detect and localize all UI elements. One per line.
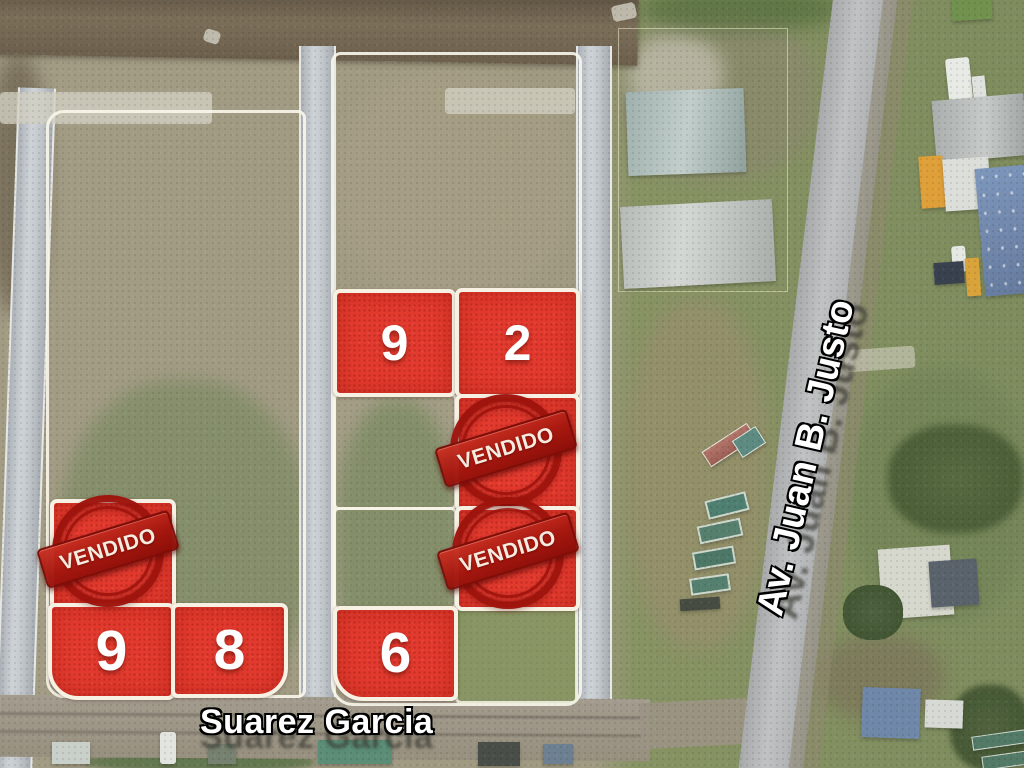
lot-number: 8 <box>214 622 246 679</box>
avenue-driveway <box>844 346 915 373</box>
house-blue-roof-bottom <box>861 687 921 739</box>
vendido-stamp-2: VENDIDO <box>452 497 564 609</box>
tree-blob-mid-right <box>843 585 903 640</box>
bottom-house-1 <box>52 742 90 764</box>
white-truck-1 <box>945 57 973 101</box>
lot-9-bottom: 9 <box>48 603 175 700</box>
lot-2: 2 <box>455 288 580 398</box>
lot-number: 9 <box>96 623 128 680</box>
lot-6: 6 <box>333 606 458 701</box>
warehouse-roof-1 <box>626 88 747 176</box>
vendido-stamp-3: VENDIDO <box>52 495 164 607</box>
dark-panel-roof <box>933 261 964 285</box>
yellow-strip-building <box>965 258 982 297</box>
lot-9-top: 9 <box>333 289 456 397</box>
bottom-house-3 <box>478 742 520 766</box>
green-container <box>951 0 992 21</box>
tree-cluster-right <box>888 425 1023 533</box>
vendido-stamp-1: VENDIDO <box>450 394 562 506</box>
warehouse-roof-3 <box>931 93 1024 163</box>
warehouse-roof-2 <box>620 199 776 289</box>
parcel-green <box>455 605 578 704</box>
bottom-house-2 <box>208 744 236 764</box>
lot-number: 2 <box>504 318 532 368</box>
bottom-teal-roof <box>318 740 392 764</box>
lot-8: 8 <box>171 603 288 698</box>
street-label-suarez-garcia: Suarez Garcia <box>200 703 433 742</box>
bottom-white-van <box>160 732 176 764</box>
lot-number: 9 <box>381 318 409 368</box>
aerial-lot-map: 9 2 9 8 6 VENDIDO VENDIDO VENDIDO Suarez… <box>0 0 1024 768</box>
blue-metal-roof <box>975 163 1024 296</box>
lot-number: 6 <box>380 625 412 682</box>
house-white-bottom <box>925 699 964 728</box>
house-dark-roof <box>928 558 979 607</box>
bottom-house-4 <box>543 744 573 764</box>
